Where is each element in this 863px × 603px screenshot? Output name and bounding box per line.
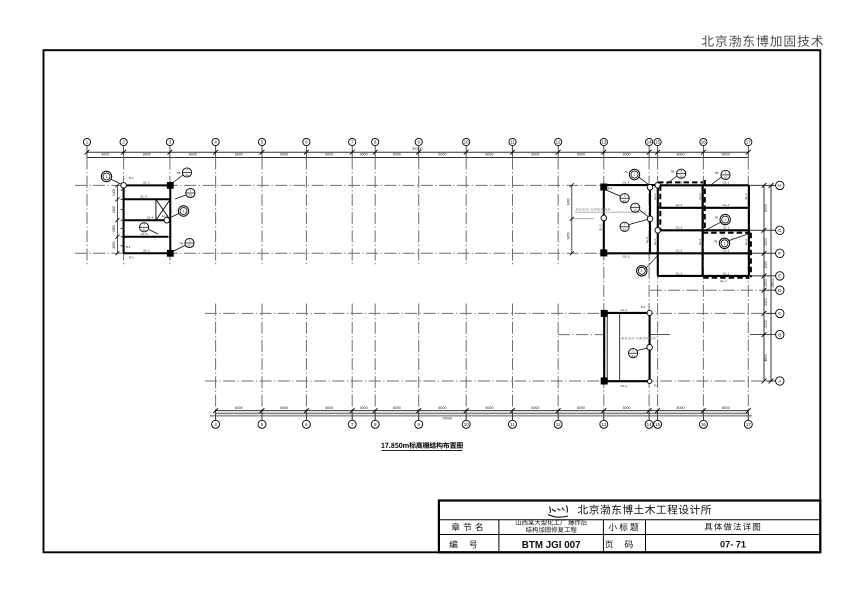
svg-text:R-1: R-1 <box>129 255 134 259</box>
svg-text:17: 17 <box>746 140 751 145</box>
svg-text:8000: 8000 <box>677 406 685 410</box>
svg-text:6000: 6000 <box>325 153 333 157</box>
svg-text:GL-4: GL-4 <box>147 215 154 219</box>
svg-text:GL-1: GL-1 <box>723 203 730 207</box>
svg-text:07- 71: 07- 71 <box>720 540 746 550</box>
svg-text:7: 7 <box>186 168 188 172</box>
svg-text:7: 7 <box>634 204 636 208</box>
svg-text:6000: 6000 <box>764 204 768 212</box>
svg-text:7: 7 <box>143 223 145 227</box>
svg-text:6000: 6000 <box>531 153 539 157</box>
svg-text:1: 1 <box>634 173 636 177</box>
svg-text:17: 17 <box>746 422 751 427</box>
svg-text:7B: 7B <box>715 171 719 175</box>
svg-text:GL-1: GL-1 <box>723 249 730 253</box>
svg-text:6000: 6000 <box>577 406 585 410</box>
svg-text:11: 11 <box>510 422 515 427</box>
svg-text:7A: 7A <box>624 170 628 174</box>
svg-text:13: 13 <box>601 140 606 145</box>
svg-text:6000: 6000 <box>485 406 493 410</box>
svg-text:GL-6: GL-6 <box>141 232 148 236</box>
svg-text:GL-1: GL-1 <box>623 254 630 258</box>
svg-text:GL-1: GL-1 <box>623 180 630 184</box>
svg-text:12: 12 <box>556 140 561 145</box>
svg-text:13: 13 <box>601 422 606 427</box>
svg-text:R-1: R-1 <box>129 176 134 180</box>
svg-text:1: 1 <box>106 175 108 179</box>
svg-text:6000: 6000 <box>393 406 401 410</box>
svg-text:8000: 8000 <box>189 153 197 157</box>
svg-text:14: 14 <box>647 140 652 145</box>
svg-text:6000: 6000 <box>393 153 401 157</box>
svg-text:GL-2: GL-2 <box>744 238 748 245</box>
svg-text:12: 12 <box>556 422 561 427</box>
svg-text:GL-1: GL-1 <box>621 384 628 388</box>
svg-text:GL-2: GL-2 <box>653 238 657 245</box>
svg-text:2100: 2100 <box>764 320 768 328</box>
svg-text:6000: 6000 <box>577 153 585 157</box>
svg-text:1400: 1400 <box>112 189 116 196</box>
svg-text:15: 15 <box>655 140 660 145</box>
svg-text:GL-1: GL-1 <box>676 249 683 253</box>
svg-text:GL-3: GL-3 <box>140 195 147 199</box>
svg-text:R-4: R-4 <box>641 305 646 309</box>
svg-text:87000: 87000 <box>413 147 423 151</box>
svg-text:1650: 1650 <box>112 241 116 248</box>
svg-text:GL-2: GL-2 <box>698 193 702 200</box>
svg-text:GL-8: GL-8 <box>162 214 169 218</box>
svg-text:16: 16 <box>701 422 706 427</box>
svg-text:R-4: R-4 <box>608 187 613 191</box>
svg-text:14: 14 <box>647 422 652 427</box>
svg-text:8000: 8000 <box>722 406 730 410</box>
svg-text:E: E <box>778 274 781 279</box>
svg-text:F: F <box>778 251 781 256</box>
svg-text:R-2: R-2 <box>126 245 131 249</box>
svg-text:70000: 70000 <box>442 417 452 421</box>
svg-text:8000: 8000 <box>143 153 151 157</box>
svg-text:BTM JGI 007: BTM JGI 007 <box>522 540 581 551</box>
svg-text:GL-2: GL-2 <box>653 193 657 200</box>
svg-text:GL-1: GL-1 <box>723 181 730 185</box>
svg-text:7: 7 <box>189 189 191 193</box>
svg-text:2000: 2000 <box>764 261 768 269</box>
svg-text:GL-2: GL-2 <box>645 236 649 243</box>
svg-text:GL-2: GL-2 <box>744 193 748 200</box>
svg-text:7: 7 <box>624 223 626 227</box>
svg-text:6000: 6000 <box>485 153 493 157</box>
svg-text:H: H <box>778 183 781 188</box>
svg-text:1: 1 <box>641 269 643 273</box>
svg-text:6800: 6800 <box>235 153 243 157</box>
svg-text:GL-2: GL-2 <box>599 224 603 231</box>
svg-text:GL-7: GL-7 <box>720 279 727 283</box>
svg-text:GL-1: GL-1 <box>676 271 683 275</box>
svg-text:GL-1: GL-1 <box>723 226 730 230</box>
svg-text:7B: 7B <box>179 242 183 246</box>
svg-text:6000: 6000 <box>531 406 539 410</box>
svg-text:7: 7 <box>624 194 626 198</box>
svg-text:7: 7 <box>680 170 682 174</box>
svg-text:1: 1 <box>724 218 726 222</box>
svg-text:6000: 6000 <box>235 406 243 410</box>
svg-text:7: 7 <box>632 349 634 353</box>
svg-text:3000: 3000 <box>623 406 631 410</box>
svg-text:6000: 6000 <box>438 406 446 410</box>
svg-text:6000: 6000 <box>325 406 333 410</box>
svg-text:7B: 7B <box>714 216 718 220</box>
svg-text:6000: 6000 <box>280 406 288 410</box>
svg-text:11: 11 <box>510 140 515 145</box>
svg-text:GL-1: GL-1 <box>723 271 730 275</box>
svg-text:G: G <box>778 228 782 233</box>
svg-text:GL-1: GL-1 <box>143 181 150 185</box>
svg-text:6000: 6000 <box>438 153 446 157</box>
svg-text:2100: 2100 <box>112 206 116 213</box>
svg-text:2000: 2000 <box>764 238 768 246</box>
svg-text:10: 10 <box>464 422 469 427</box>
svg-text:1: 1 <box>183 209 185 213</box>
svg-text:3000: 3000 <box>623 153 631 157</box>
svg-text:GL-2: GL-2 <box>698 238 702 245</box>
svg-text:7B: 7B <box>177 171 181 175</box>
svg-text:R-2: R-2 <box>654 384 659 388</box>
svg-text:6000: 6000 <box>280 153 288 157</box>
svg-text:3450: 3450 <box>566 232 570 239</box>
svg-text:3000: 3000 <box>101 153 109 157</box>
svg-text:15: 15 <box>655 422 660 427</box>
svg-text:8000: 8000 <box>722 153 730 157</box>
svg-text:7B: 7B <box>714 239 718 243</box>
svg-text:3400: 3400 <box>566 198 570 205</box>
svg-text:3000: 3000 <box>360 153 368 157</box>
svg-text:3000: 3000 <box>360 406 368 410</box>
svg-text:GL-1: GL-1 <box>676 226 683 230</box>
svg-text:GL-1: GL-1 <box>143 249 150 253</box>
svg-text:7B: 7B <box>670 170 674 174</box>
svg-text:10: 10 <box>464 140 469 145</box>
svg-text:B: B <box>778 332 781 337</box>
svg-text:GL-1: GL-1 <box>621 308 628 312</box>
svg-text:1500: 1500 <box>764 279 768 287</box>
svg-text:4600: 4600 <box>764 354 768 362</box>
svg-text:1650: 1650 <box>112 225 116 232</box>
svg-text:19500: 19500 <box>771 278 775 288</box>
svg-text:16: 16 <box>701 140 706 145</box>
svg-text:7: 7 <box>189 239 191 243</box>
svg-text:2300: 2300 <box>764 298 768 306</box>
svg-text:GL-1: GL-1 <box>676 181 683 185</box>
svg-text:1: 1 <box>724 242 726 246</box>
svg-text:7: 7 <box>725 171 727 175</box>
svg-text:8000: 8000 <box>677 153 685 157</box>
svg-text:GL-1: GL-1 <box>676 203 683 207</box>
